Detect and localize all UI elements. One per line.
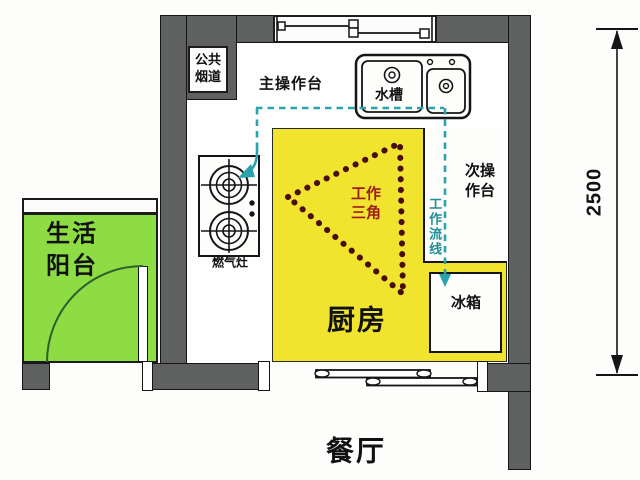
door-frame-cap-left <box>142 361 153 391</box>
balcony-label-line2: 阳台 <box>46 251 98 283</box>
dimension-value: 2500 <box>583 168 608 217</box>
flue-label-line2: 烟道 <box>195 69 221 86</box>
work-flow-label: 工作流线 <box>426 197 442 257</box>
flue-label-line1: 公共 <box>195 52 221 69</box>
balcony-label-line1: 生活 <box>46 219 98 251</box>
balcony-label: 生活 阳台 <box>46 219 98 284</box>
dining-label: 餐厅 <box>326 434 386 469</box>
work-triangle-line1: 工作 <box>351 185 381 204</box>
work-triangle-line2: 三角 <box>351 204 381 223</box>
secondary-counter-line1: 次操 <box>465 162 495 182</box>
top-window <box>273 15 437 43</box>
balcony-window-band <box>22 198 158 214</box>
flue-label: 公共 烟道 <box>195 52 221 86</box>
wall-left <box>160 15 187 390</box>
door-frame-cap-right <box>477 361 488 392</box>
secondary-counter-line2: 作台 <box>465 181 495 201</box>
secondary-counter-label: 次操 作台 <box>465 162 495 201</box>
work-triangle-label: 工作 三角 <box>351 185 381 223</box>
wall-balcony-stub <box>22 363 50 390</box>
stove-box <box>198 155 260 257</box>
kitchen-label: 厨房 <box>327 303 387 338</box>
main-counter-label: 主操作台 <box>259 76 323 95</box>
wall-bottom-left <box>143 363 270 390</box>
balcony-door-leaf <box>138 266 148 362</box>
sink-label: 水槽 <box>375 86 403 104</box>
floor-plan-canvas: 公共 烟道 主操作台 水槽 次操 作台 燃气灶 冰箱 工作 三角 工作流线 厨房… <box>0 0 640 480</box>
door-frame-cap-mid <box>258 361 270 391</box>
wall-right <box>508 15 531 470</box>
sliding-door-symbol <box>315 370 477 386</box>
stove-label: 燃气灶 <box>212 256 248 271</box>
fridge-label: 冰箱 <box>451 295 481 314</box>
